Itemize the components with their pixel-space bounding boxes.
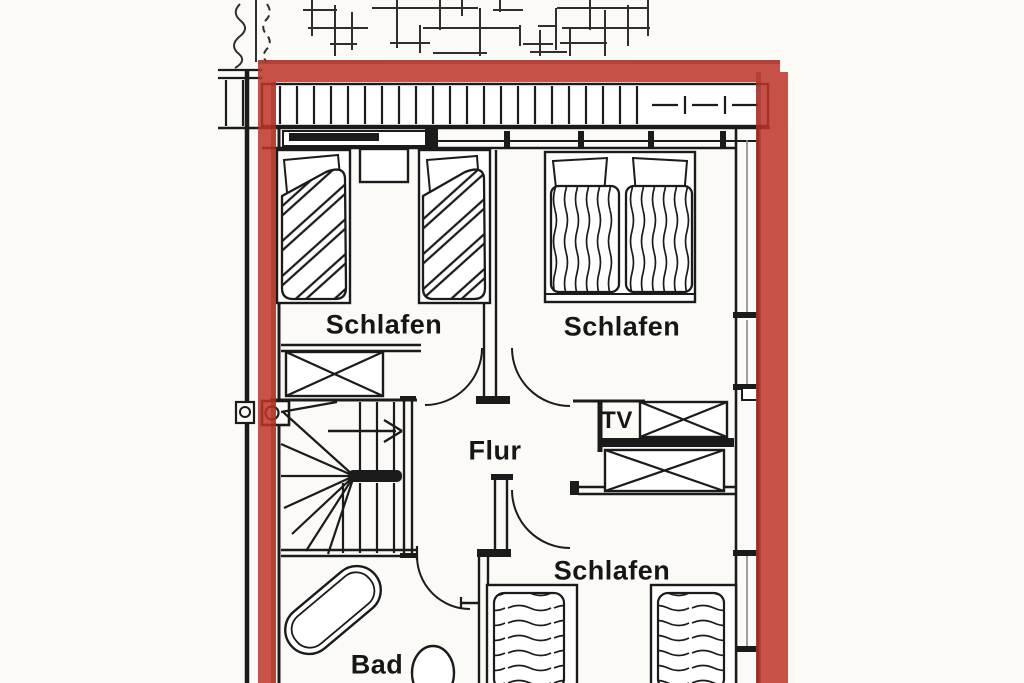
top-hatched-wall-band [262, 84, 768, 126]
floorplan-page: Schlafen Schlafen Flur TV Schlafen Bad [0, 0, 1024, 683]
bedroom-bottom-furniture [487, 585, 736, 683]
neighbor-unit-fragment [218, 70, 262, 683]
crossed-furniture-boxes [262, 352, 727, 491]
break-line-squiggles [234, 0, 270, 68]
staircase [281, 402, 402, 554]
tv-board-box [640, 402, 727, 437]
room-label-bathroom: Bad [351, 650, 404, 681]
room-label-bedroom-top-right: Schlafen [564, 312, 681, 343]
bedroom-top-right-furniture [545, 152, 695, 302]
bathtub [275, 556, 390, 663]
stair-handrail-bar [348, 470, 402, 482]
stair-direction-arrow [328, 420, 402, 442]
room-label-bedroom-top-left: Schlafen [326, 310, 443, 341]
bedroom-top-left-furniture [277, 149, 490, 303]
room-label-tv: TV [601, 407, 633, 435]
room-label-hallway: Flur [469, 436, 522, 467]
dresser-box [605, 450, 724, 491]
floorplan-drawing [0, 0, 1024, 683]
upper-floor-ghost-sketch [303, 0, 650, 56]
room-label-bedroom-bottom: Schlafen [554, 556, 671, 587]
wardrobe-box [286, 352, 383, 396]
window-sill-dark [289, 133, 379, 141]
toilet [412, 646, 454, 683]
nightstand [360, 149, 408, 182]
